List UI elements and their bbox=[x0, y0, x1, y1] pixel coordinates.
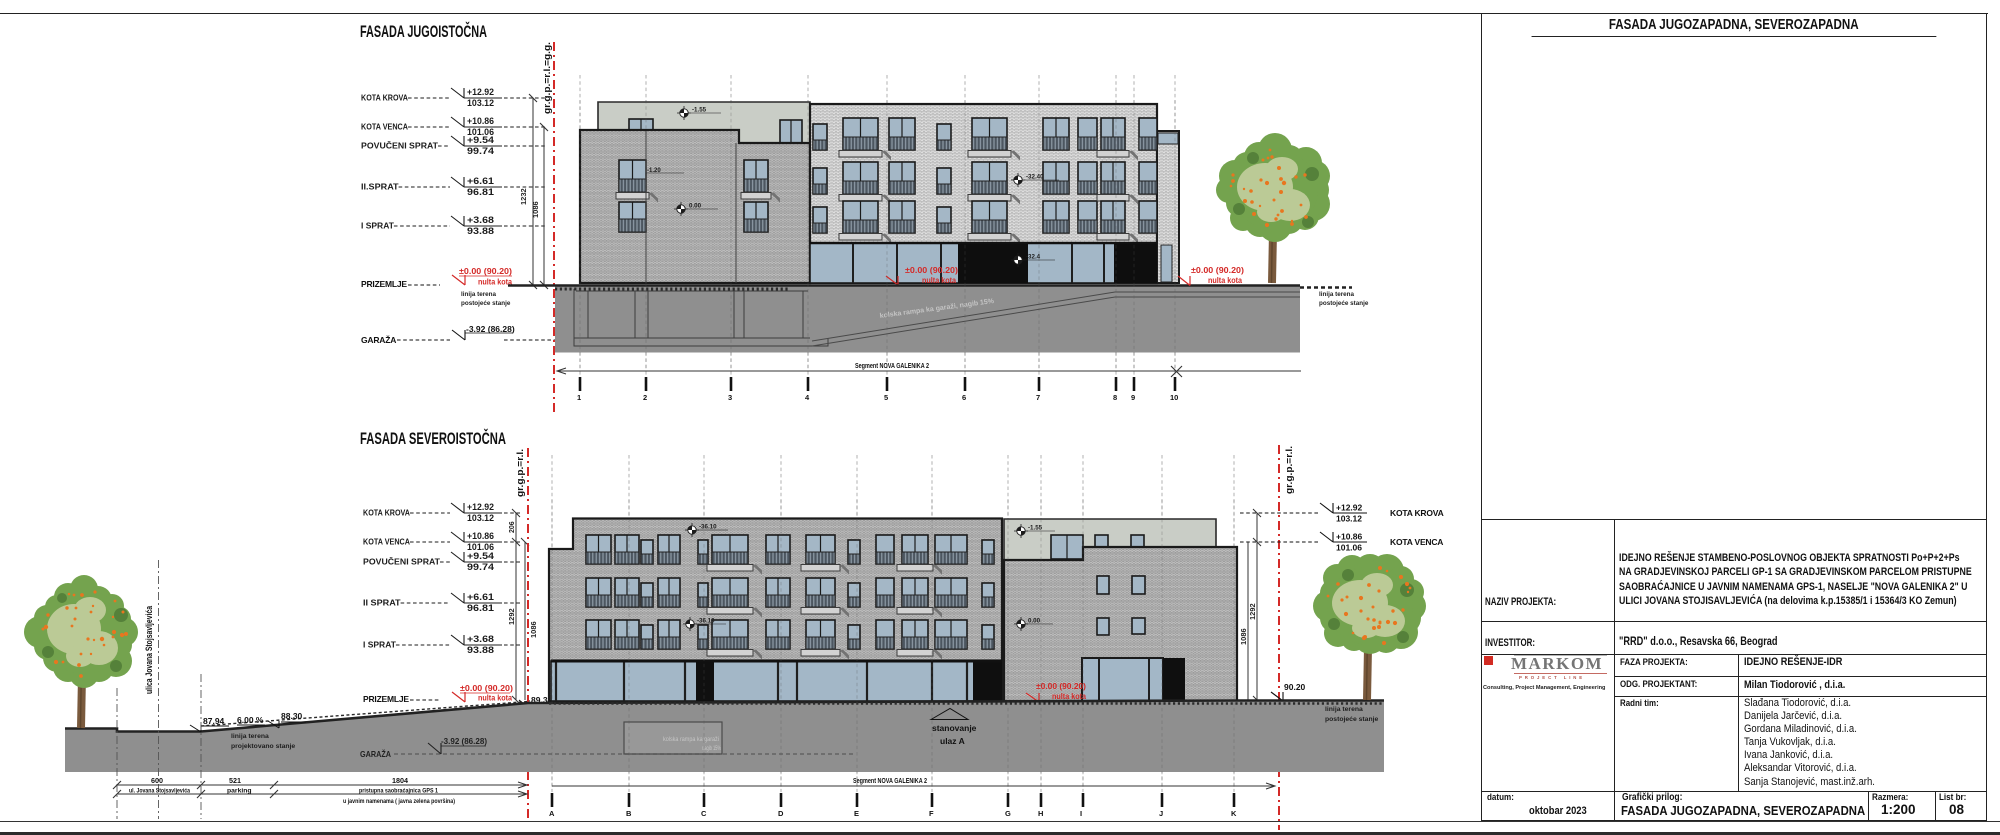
svg-text:+6.61: +6.61 bbox=[467, 592, 495, 603]
svg-text:nulta kota: nulta kota bbox=[1052, 692, 1086, 701]
svg-text:I SPRAT: I SPRAT bbox=[363, 640, 397, 650]
svg-text:H: H bbox=[1038, 809, 1043, 818]
svg-text:1232: 1232 bbox=[519, 188, 528, 205]
svg-text:+3.68: +3.68 bbox=[467, 215, 494, 226]
svg-text:88.30: 88.30 bbox=[281, 711, 303, 721]
svg-text:nulta kota: nulta kota bbox=[478, 694, 512, 703]
svg-text:1: 1 bbox=[577, 393, 581, 402]
svg-text:gr.g.p.=r.l.: gr.g.p.=r.l. bbox=[1284, 446, 1295, 494]
svg-text:KOTA VENCA: KOTA VENCA bbox=[363, 537, 410, 547]
svg-text:1292: 1292 bbox=[507, 608, 516, 625]
svg-text:1086: 1086 bbox=[531, 201, 540, 218]
svg-text:+9.54: +9.54 bbox=[467, 135, 495, 146]
svg-text:6: 6 bbox=[962, 393, 966, 402]
svg-text:GARAŽA: GARAŽA bbox=[361, 334, 396, 345]
svg-text:101.06: 101.06 bbox=[1336, 543, 1362, 553]
svg-text:±0.00 (90.20): ±0.00 (90.20) bbox=[460, 683, 513, 693]
svg-text:10: 10 bbox=[1170, 393, 1178, 402]
svg-text:+6.61: +6.61 bbox=[467, 176, 495, 187]
svg-text:FASADA JUGOISTOČNA: FASADA JUGOISTOČNA bbox=[360, 22, 487, 41]
svg-text:2: 2 bbox=[643, 393, 647, 402]
svg-text:96.81: 96.81 bbox=[467, 603, 495, 614]
svg-text:3: 3 bbox=[728, 393, 732, 402]
svg-text:+10.86: +10.86 bbox=[467, 116, 494, 127]
svg-text:4: 4 bbox=[805, 393, 810, 402]
svg-text:103.12: 103.12 bbox=[467, 513, 494, 524]
svg-text:+10.86: +10.86 bbox=[467, 531, 494, 542]
svg-text:-36.10: -36.10 bbox=[697, 618, 715, 625]
svg-text:gr.g.p.=r.l.: gr.g.p.=r.l. bbox=[515, 449, 526, 497]
svg-text:Segment NOVA GALENIKA 2: Segment NOVA GALENIKA 2 bbox=[855, 361, 929, 370]
svg-text:1086: 1086 bbox=[529, 621, 538, 638]
svg-text:postojeće stanje: postojeće stanje bbox=[461, 300, 511, 307]
svg-text:+10.86: +10.86 bbox=[1336, 532, 1363, 542]
svg-text:A: A bbox=[549, 809, 555, 818]
svg-text:II SPRAT: II SPRAT bbox=[363, 598, 401, 608]
svg-text:nulta kota: nulta kota bbox=[1208, 276, 1242, 285]
svg-text:I: I bbox=[1080, 809, 1082, 818]
svg-text:G: G bbox=[1005, 809, 1011, 818]
svg-text:-36.10: -36.10 bbox=[699, 524, 717, 531]
svg-text:linija terena: linija terena bbox=[461, 291, 496, 298]
svg-text:stanovanje: stanovanje bbox=[932, 723, 977, 733]
svg-text:600: 600 bbox=[151, 776, 163, 785]
svg-text:±0.00 (90.20): ±0.00 (90.20) bbox=[459, 266, 512, 276]
svg-text:93.88: 93.88 bbox=[467, 645, 494, 656]
svg-text:kolska rampa ka garaži: kolska rampa ka garaži bbox=[663, 736, 719, 743]
svg-text:POVUČENI SPRAT: POVUČENI SPRAT bbox=[363, 556, 441, 567]
svg-text:1086: 1086 bbox=[1239, 628, 1248, 645]
svg-text:-3.92 (86.28): -3.92 (86.28) bbox=[441, 736, 487, 746]
svg-text:+12.92: +12.92 bbox=[467, 502, 494, 513]
svg-text:103.12: 103.12 bbox=[467, 98, 494, 109]
svg-text:K: K bbox=[1231, 809, 1237, 818]
svg-text:1804: 1804 bbox=[392, 776, 408, 785]
svg-text:pristupna saobraćajnica GPS 1: pristupna saobraćajnica GPS 1 bbox=[359, 788, 438, 795]
svg-text:parking: parking bbox=[227, 788, 252, 795]
svg-text:+3.68: +3.68 bbox=[467, 634, 494, 645]
svg-text:ulaz A: ulaz A bbox=[940, 736, 965, 746]
svg-text:-3.92 (86.28): -3.92 (86.28) bbox=[466, 324, 515, 334]
svg-text:postojeće stanje: postojeće stanje bbox=[1325, 716, 1378, 723]
svg-text:D: D bbox=[778, 809, 784, 818]
svg-text:u javnim namenama ( javna zele: u javnim namenama ( javna zelena površin… bbox=[343, 798, 455, 805]
svg-text:±0.00 (90.20): ±0.00 (90.20) bbox=[1036, 681, 1086, 691]
svg-text:POVUČENI SPRAT: POVUČENI SPRAT bbox=[361, 140, 439, 151]
svg-text:+9.54: +9.54 bbox=[467, 551, 495, 562]
svg-text:-32.4: -32.4 bbox=[1026, 254, 1041, 261]
svg-text:+12.92: +12.92 bbox=[467, 87, 494, 98]
svg-text:GARAŽA: GARAŽA bbox=[360, 748, 391, 759]
svg-text:93.88: 93.88 bbox=[467, 226, 494, 237]
svg-text:99.74: 99.74 bbox=[467, 562, 495, 573]
svg-text:5: 5 bbox=[884, 393, 888, 402]
svg-text:90.20: 90.20 bbox=[1284, 682, 1306, 692]
svg-text:0.00: 0.00 bbox=[689, 203, 702, 210]
svg-text:postojeće stanje: postojeće stanje bbox=[1319, 300, 1369, 307]
svg-text:F: F bbox=[929, 809, 934, 818]
svg-text:KOTA KROVA: KOTA KROVA bbox=[361, 93, 408, 103]
svg-text:gr.g.p.=r.l.=g.g.: gr.g.p.=r.l.=g.g. bbox=[542, 42, 553, 114]
svg-text:E: E bbox=[854, 809, 859, 818]
svg-text:J: J bbox=[1159, 809, 1163, 818]
svg-text:96.81: 96.81 bbox=[467, 187, 495, 198]
svg-text:PRIZEMLJE: PRIZEMLJE bbox=[363, 694, 409, 704]
svg-text:FASADA SEVEROISTOČNA: FASADA SEVEROISTOČNA bbox=[360, 429, 506, 448]
svg-text:PRIZEMLJE: PRIZEMLJE bbox=[361, 279, 407, 289]
svg-text:Segment NOVA GALENIKA 2: Segment NOVA GALENIKA 2 bbox=[853, 776, 927, 785]
svg-text:103.12: 103.12 bbox=[1336, 514, 1362, 524]
svg-text:-1.55: -1.55 bbox=[1028, 525, 1043, 532]
svg-text:KOTA KROVA: KOTA KROVA bbox=[1390, 508, 1444, 518]
svg-text:nulta kota: nulta kota bbox=[922, 276, 956, 285]
svg-text:C: C bbox=[701, 809, 707, 818]
svg-text:linija terena: linija terena bbox=[1325, 706, 1363, 713]
svg-text:0.00: 0.00 bbox=[1028, 618, 1041, 625]
svg-text:linija terena: linija terena bbox=[1319, 291, 1354, 298]
svg-text:6.00 %: 6.00 % bbox=[237, 715, 264, 725]
svg-text:B: B bbox=[626, 809, 632, 818]
svg-text:7: 7 bbox=[1036, 393, 1040, 402]
svg-text:87.94: 87.94 bbox=[203, 716, 225, 726]
svg-text:-32.40: -32.40 bbox=[1026, 174, 1044, 181]
svg-text:521: 521 bbox=[229, 776, 241, 785]
svg-text:I SPRAT: I SPRAT bbox=[361, 221, 395, 231]
svg-text:KOTA KROVA: KOTA KROVA bbox=[363, 508, 410, 518]
svg-text:1292: 1292 bbox=[1248, 603, 1257, 620]
svg-text:8: 8 bbox=[1113, 393, 1117, 402]
svg-text:±0.00 (90.20): ±0.00 (90.20) bbox=[905, 265, 958, 275]
svg-text:nulta kota: nulta kota bbox=[478, 278, 512, 287]
svg-text:KOTA VENCA: KOTA VENCA bbox=[1390, 537, 1443, 547]
svg-text:+12.92: +12.92 bbox=[1336, 503, 1363, 513]
svg-text:9: 9 bbox=[1131, 393, 1135, 402]
svg-text:±0.00 (90.20): ±0.00 (90.20) bbox=[1191, 265, 1244, 275]
svg-text:ul. Jovana Stojsavljevića: ul. Jovana Stojsavljevića bbox=[129, 788, 190, 795]
svg-text:KOTA VENCA: KOTA VENCA bbox=[361, 122, 408, 132]
svg-text:II.SPRAT: II.SPRAT bbox=[361, 182, 399, 192]
svg-text:linija terena: linija terena bbox=[231, 733, 269, 740]
svg-text:206: 206 bbox=[509, 521, 516, 533]
svg-text:ulica Jovana Stojsavljevića: ulica Jovana Stojsavljevića bbox=[144, 606, 154, 694]
svg-text:99.74: 99.74 bbox=[467, 146, 495, 157]
svg-text:nagib 15%: nagib 15% bbox=[702, 745, 721, 752]
svg-text:projektovano stanje: projektovano stanje bbox=[231, 743, 295, 750]
svg-text:-1.55: -1.55 bbox=[692, 107, 707, 114]
